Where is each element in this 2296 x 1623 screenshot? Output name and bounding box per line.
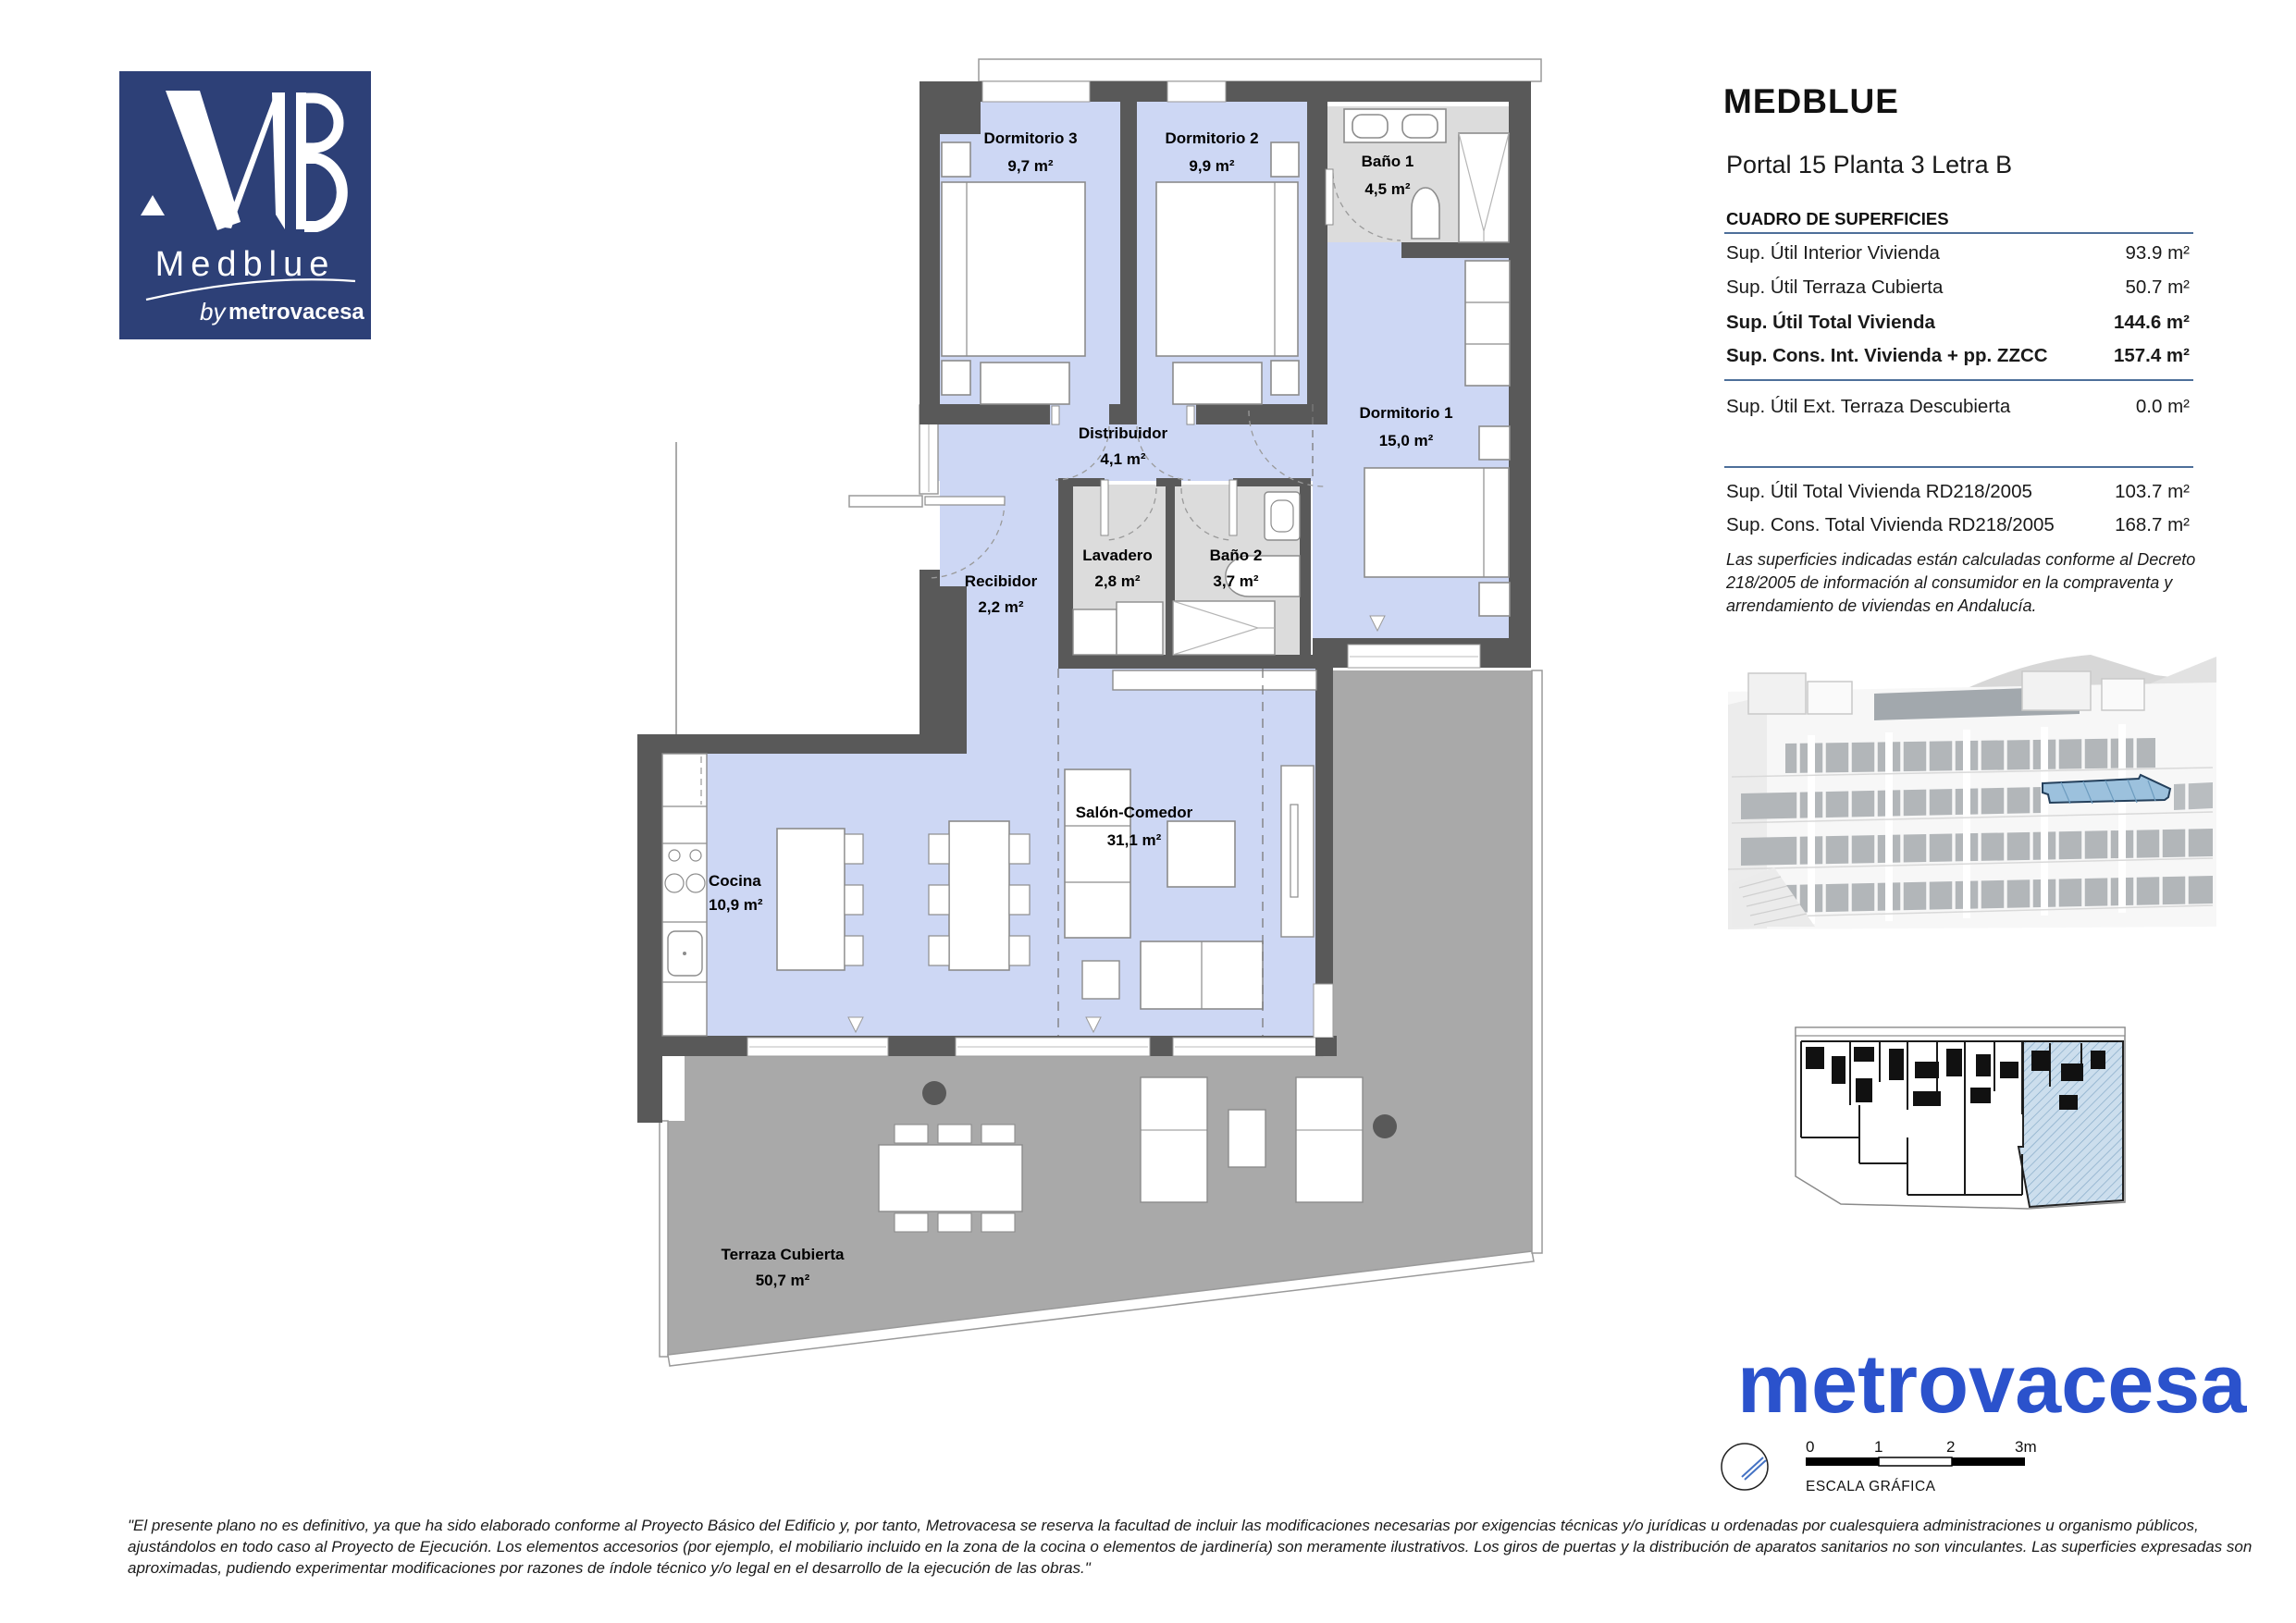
svg-text:by: by	[200, 298, 227, 326]
svg-text:Cocina: Cocina	[709, 872, 761, 890]
svg-text:9,7 m²: 9,7 m²	[1007, 157, 1053, 175]
svg-text:Sup. Útil Total Vivienda: Sup. Útil Total Vivienda	[1726, 311, 1936, 333]
svg-text:2,2 m²: 2,2 m²	[978, 598, 1023, 616]
svg-text:metrovacesa: metrovacesa	[1737, 1338, 2247, 1431]
svg-text:4,5 m²: 4,5 m²	[1364, 180, 1410, 198]
svg-text:Sup. Útil Terraza Cubierta: Sup. Útil Terraza Cubierta	[1726, 277, 1944, 298]
svg-text:0: 0	[1806, 1438, 1814, 1456]
svg-text:10,9 m²: 10,9 m²	[709, 896, 763, 914]
svg-text:50,7 m²: 50,7 m²	[756, 1272, 810, 1289]
svg-text:157.4 m²: 157.4 m²	[2114, 345, 2190, 366]
svg-text:168.7 m²: 168.7 m²	[2115, 514, 2190, 535]
svg-text:Sup. Útil Interior Vivienda: Sup. Útil Interior Vivienda	[1726, 242, 1941, 264]
svg-text:Las superficies indicadas está: Las superficies indicadas están calculad…	[1726, 550, 2195, 569]
svg-text:Baño 1: Baño 1	[1362, 153, 1414, 170]
svg-text:Terraza Cubierta: Terraza Cubierta	[722, 1246, 845, 1263]
svg-text:Portal 15 Planta 3 Letra B: Portal 15 Planta 3 Letra B	[1726, 151, 2012, 178]
svg-text:2,8 m²: 2,8 m²	[1094, 572, 1140, 590]
svg-text:9,9 m²: 9,9 m²	[1189, 157, 1234, 175]
svg-text:"El presente plano no es defin: "El presente plano no es definitivo, ya …	[128, 1517, 2199, 1534]
svg-text:1: 1	[1874, 1438, 1882, 1456]
svg-text:Baño 2: Baño 2	[1210, 547, 1263, 564]
svg-text:218/2005 de información al con: 218/2005 de información al consumidor en…	[1725, 573, 2173, 592]
svg-text:50.7 m²: 50.7 m²	[2126, 277, 2191, 298]
svg-text:Dormitorio 2: Dormitorio 2	[1165, 129, 1258, 147]
svg-text:Sup. Útil Ext. Terraza Descubi: Sup. Útil Ext. Terraza Descubierta	[1726, 396, 2011, 417]
svg-text:Sup. Cons. Total Vivienda RD21: Sup. Cons. Total Vivienda RD218/2005	[1726, 514, 2055, 535]
svg-text:metrovacesa: metrovacesa	[228, 300, 364, 325]
svg-text:144.6 m²: 144.6 m²	[2114, 312, 2190, 333]
svg-text:Sup. Útil Total Vivienda RD218: Sup. Útil Total Vivienda RD218/2005	[1726, 481, 2032, 502]
svg-text:Recibidor: Recibidor	[965, 572, 1038, 590]
svg-text:4,1 m²: 4,1 m²	[1100, 450, 1145, 468]
svg-text:Dormitorio 1: Dormitorio 1	[1359, 404, 1452, 422]
svg-text:ESCALA GRÁFICA: ESCALA GRÁFICA	[1806, 1479, 1936, 1494]
svg-text:ajustándolos en todo caso al P: ajustándolos en todo caso al Proyecto de…	[128, 1538, 2252, 1555]
svg-text:103.7 m²: 103.7 m²	[2115, 481, 2190, 502]
svg-text:0.0 m²: 0.0 m²	[2136, 396, 2190, 417]
svg-text:MEDBLUE: MEDBLUE	[1723, 82, 1899, 120]
svg-text:Sup. Cons. Int. Vivienda + pp.: Sup. Cons. Int. Vivienda + pp. ZZCC	[1726, 345, 2048, 366]
svg-text:Dormitorio 3: Dormitorio 3	[983, 129, 1077, 147]
svg-text:Distribuidor: Distribuidor	[1079, 424, 1168, 442]
svg-text:arrendamiento de viviendas en: arrendamiento de viviendas en Andalucía.	[1726, 596, 2037, 615]
svg-text:2: 2	[1946, 1438, 1955, 1456]
svg-text:CUADRO DE SUPERFICIES: CUADRO DE SUPERFICIES	[1726, 209, 1949, 228]
svg-text:3m: 3m	[2015, 1438, 2037, 1456]
svg-text:Medblue: Medblue	[155, 245, 336, 284]
svg-text:93.9 m²: 93.9 m²	[2126, 242, 2191, 264]
svg-text:Lavadero: Lavadero	[1082, 547, 1153, 564]
svg-text:aproximadas, pudiendo experime: aproximadas, pudiendo experimentar modif…	[128, 1559, 1092, 1577]
svg-text:Salón-Comedor: Salón-Comedor	[1076, 804, 1193, 821]
svg-text:31,1 m²: 31,1 m²	[1107, 831, 1162, 849]
svg-text:15,0 m²: 15,0 m²	[1379, 432, 1434, 449]
svg-text:3,7 m²: 3,7 m²	[1213, 572, 1258, 590]
